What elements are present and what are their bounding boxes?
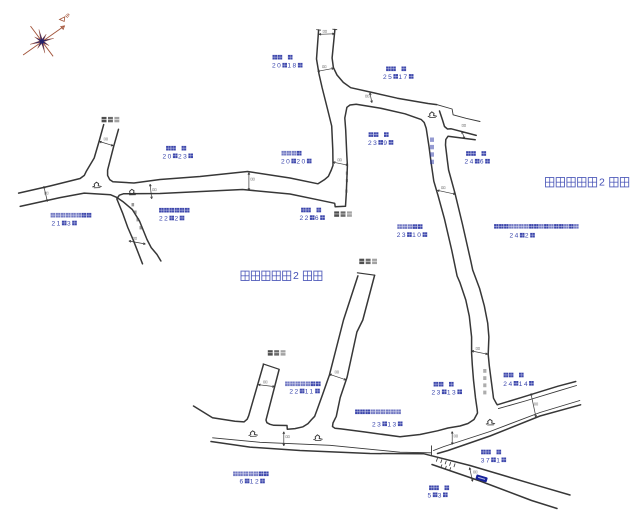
svg-text:20: 20 <box>281 159 291 166</box>
svg-text:37: 37 <box>481 457 491 464</box>
svg-text:6: 6 <box>480 159 485 166</box>
svg-text:6: 6 <box>240 479 245 486</box>
svg-text:24: 24 <box>510 233 520 240</box>
svg-text:23: 23 <box>432 389 442 396</box>
svg-text:13: 13 <box>447 389 457 396</box>
svg-text:2: 2 <box>293 270 299 282</box>
svg-text:3: 3 <box>438 492 443 499</box>
svg-text:3: 3 <box>67 221 72 228</box>
svg-text:22: 22 <box>300 215 310 222</box>
svg-text:18: 18 <box>287 63 297 70</box>
svg-text:20: 20 <box>163 153 173 160</box>
svg-text:23: 23 <box>178 153 188 160</box>
svg-text:11: 11 <box>305 389 315 396</box>
svg-text:20: 20 <box>272 63 282 70</box>
svg-text:1: 1 <box>496 457 501 464</box>
svg-text:21: 21 <box>52 221 62 228</box>
svg-text:22: 22 <box>289 389 299 396</box>
svg-text:23: 23 <box>368 140 378 147</box>
svg-text:12: 12 <box>250 479 260 486</box>
svg-text:24: 24 <box>503 381 513 388</box>
svg-text:2: 2 <box>525 233 530 240</box>
svg-text:24: 24 <box>465 159 475 166</box>
svg-text:14: 14 <box>519 381 529 388</box>
svg-text:2: 2 <box>599 177 605 189</box>
svg-text:6: 6 <box>315 215 320 222</box>
svg-text:9: 9 <box>383 140 388 147</box>
svg-text:25: 25 <box>383 74 393 81</box>
svg-text:22: 22 <box>159 216 169 223</box>
svg-text:17: 17 <box>398 74 408 81</box>
svg-text:23: 23 <box>372 421 382 428</box>
svg-text:10: 10 <box>412 232 422 239</box>
svg-text:20: 20 <box>296 159 306 166</box>
svg-text:2: 2 <box>175 216 180 223</box>
svg-text:23: 23 <box>397 232 407 239</box>
svg-text:13: 13 <box>387 421 397 428</box>
svg-text:5: 5 <box>428 492 433 499</box>
